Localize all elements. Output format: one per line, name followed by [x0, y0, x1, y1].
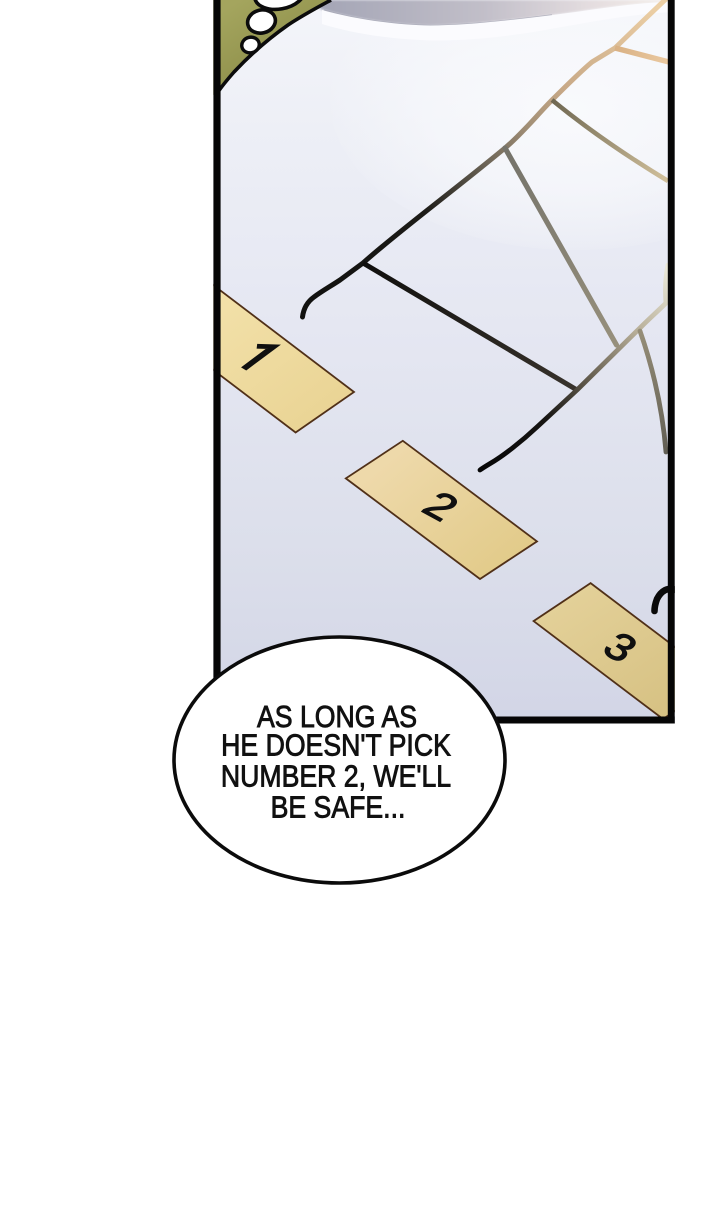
svg-text:HE DOESN'T PICK: HE DOESN'T PICK [221, 729, 451, 763]
svg-text:NUMBER 2, WE'LL: NUMBER 2, WE'LL [221, 760, 451, 794]
svg-text:BE SAFE...: BE SAFE... [271, 791, 406, 825]
